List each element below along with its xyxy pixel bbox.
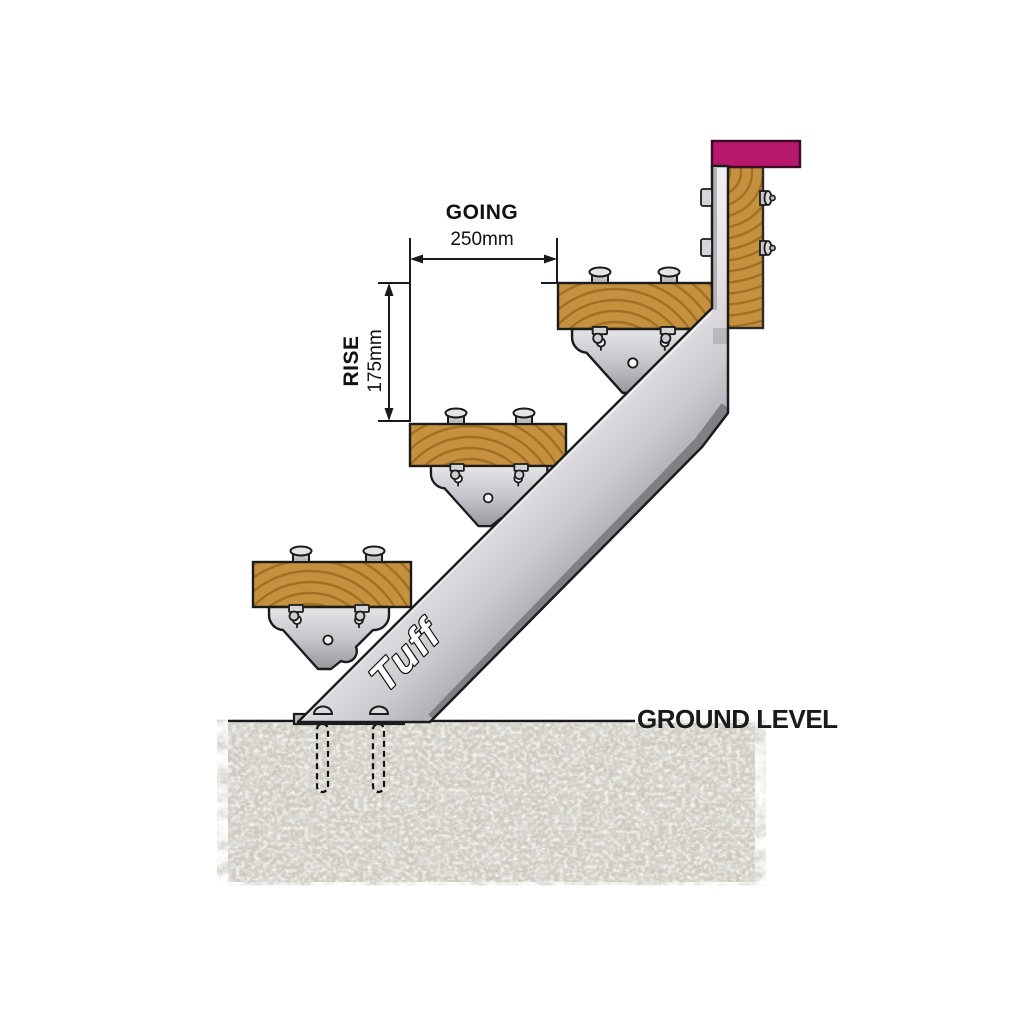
ground: GROUND LEVEL: [228, 704, 838, 882]
diagram-svg: GROUND LEVEL: [0, 0, 1024, 1024]
stair-stringer-diagram: GROUND LEVEL: [0, 0, 1024, 1024]
post-bolt-nut: [760, 241, 775, 255]
arrowhead-right: [544, 255, 557, 264]
base-plate-bolt: [370, 707, 388, 714]
rise-value: 175mm: [365, 329, 386, 392]
dimension-going: [410, 238, 557, 422]
going-label: GOING: [446, 201, 519, 224]
post-bolt-head: [701, 239, 712, 256]
post-cap: [712, 141, 800, 167]
arrowhead-left: [410, 255, 423, 264]
going-value: 250mm: [450, 229, 513, 250]
post-bolt-nut: [760, 191, 775, 205]
post-shadow: [713, 328, 763, 344]
ground-level-label: GROUND LEVEL: [637, 704, 838, 734]
arrowhead-up: [385, 283, 394, 296]
rise-label: RISE: [340, 335, 363, 386]
concrete-speckle-light: [228, 723, 755, 882]
post-bolt-head: [701, 189, 712, 206]
base-plate-bolt: [314, 707, 332, 714]
arrowhead-down: [385, 408, 394, 421]
